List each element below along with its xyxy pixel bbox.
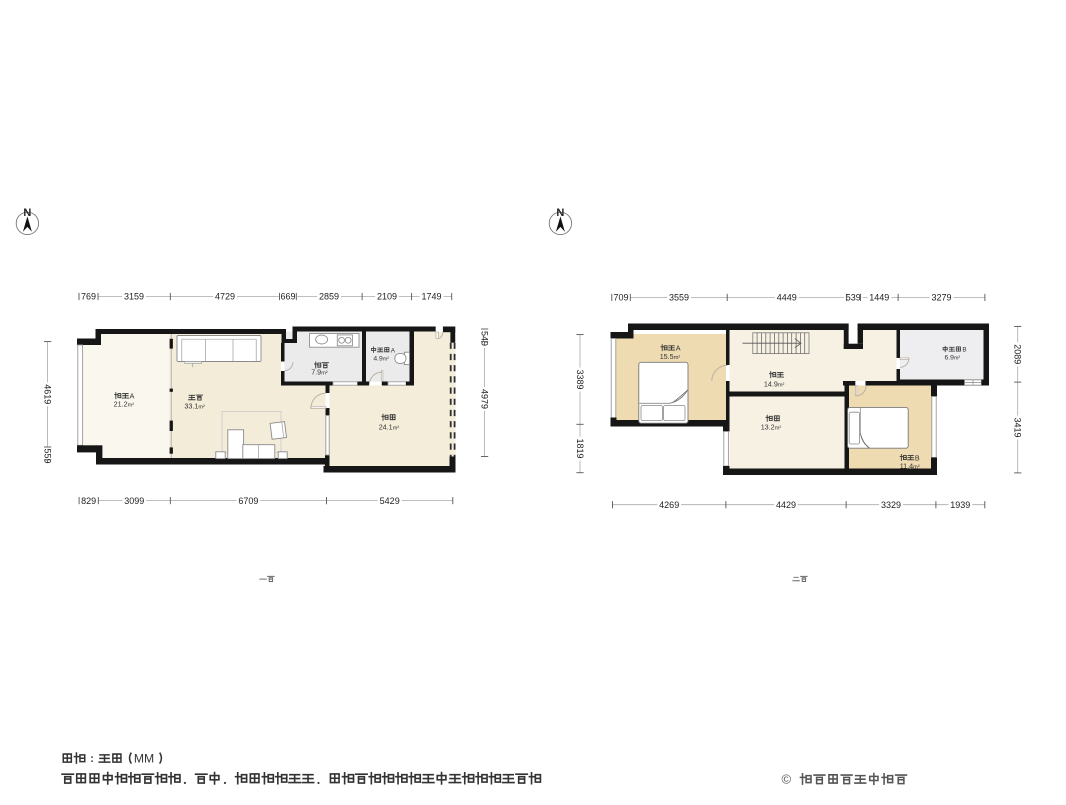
svg-text:539: 539 [846, 293, 861, 303]
svg-text:2859: 2859 [319, 292, 339, 302]
svg-text:4269: 4269 [659, 500, 679, 510]
svg-text:4429: 4429 [776, 500, 796, 510]
svg-text:3419: 3419 [1013, 417, 1023, 437]
svg-text:A: A [676, 344, 681, 353]
svg-text:3099: 3099 [124, 496, 144, 506]
svg-text:3159: 3159 [124, 292, 144, 302]
svg-text:4.9m²: 4.9m² [373, 355, 389, 362]
svg-text:2089: 2089 [1013, 344, 1023, 364]
svg-text:1819: 1819 [575, 438, 585, 458]
svg-text:1939: 1939 [950, 500, 970, 510]
svg-text:769: 769 [81, 292, 96, 302]
svg-text:1449: 1449 [869, 293, 889, 303]
svg-text:4729: 4729 [215, 292, 235, 302]
svg-text:3329: 3329 [881, 500, 901, 510]
svg-text:3279: 3279 [931, 293, 951, 303]
svg-text:1749: 1749 [421, 292, 441, 302]
svg-text:A: A [130, 391, 135, 400]
svg-text:2109: 2109 [377, 292, 397, 302]
svg-text:6709: 6709 [238, 496, 258, 506]
svg-text:669: 669 [280, 292, 295, 302]
svg-text:549: 549 [479, 331, 489, 346]
svg-text:4449: 4449 [777, 293, 797, 303]
svg-text:4619: 4619 [42, 384, 52, 404]
svg-text:829: 829 [81, 496, 96, 506]
svg-text:6.9m²: 6.9m² [945, 355, 961, 362]
svg-text:A: A [391, 347, 396, 354]
svg-text:MM: MM [134, 752, 154, 766]
svg-text:B: B [915, 453, 920, 462]
svg-text:5429: 5429 [380, 496, 400, 506]
svg-text:4979: 4979 [479, 389, 489, 409]
svg-text:559: 559 [42, 448, 52, 463]
svg-text:709: 709 [613, 293, 628, 303]
svg-text:B: B [962, 347, 966, 354]
svg-text:3559: 3559 [669, 293, 689, 303]
svg-text:3389: 3389 [575, 369, 585, 389]
svg-text:©: © [782, 771, 792, 786]
